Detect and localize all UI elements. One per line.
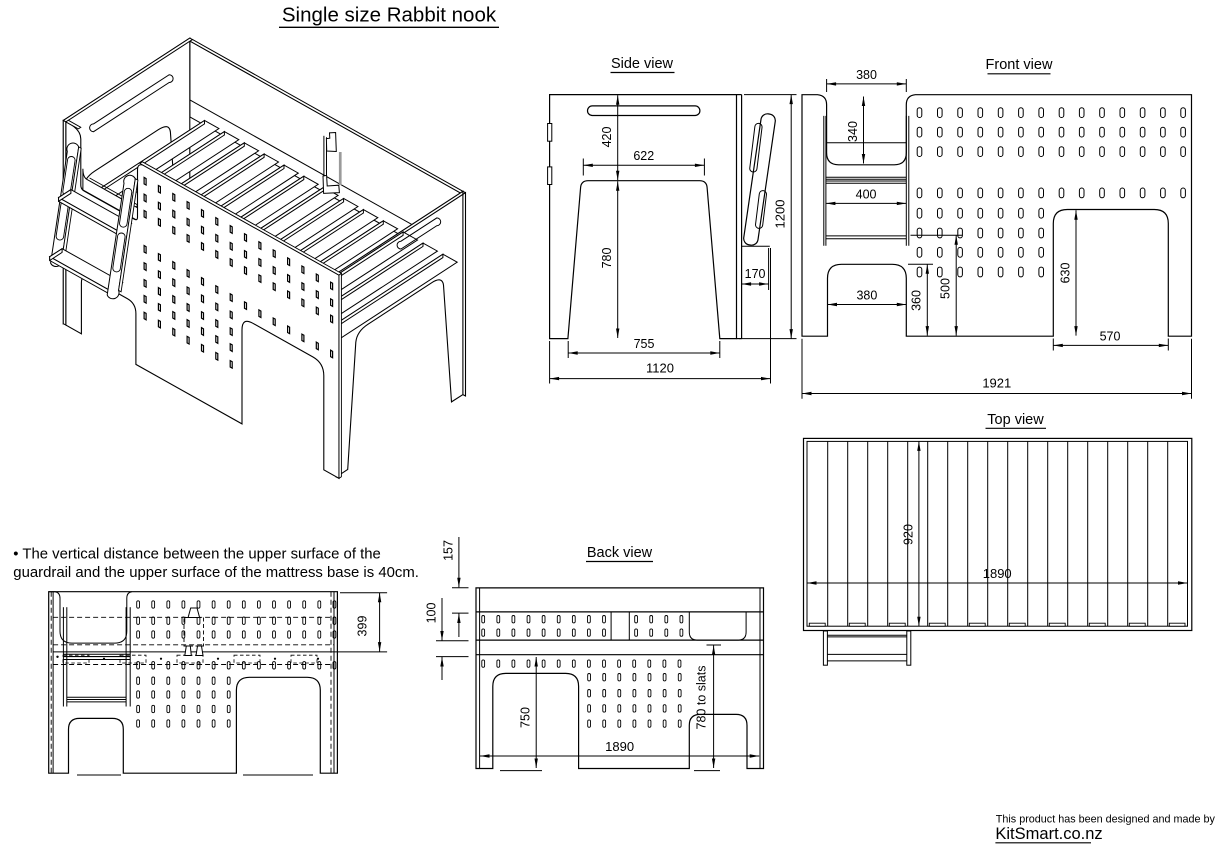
svg-text:1890: 1890: [983, 566, 1012, 581]
svg-text:Single size Rabbit nook: Single size Rabbit nook: [282, 4, 497, 27]
svg-text:360: 360: [910, 290, 924, 311]
svg-text:1200: 1200: [773, 200, 788, 229]
svg-text:755: 755: [634, 337, 655, 351]
svg-text:Back view: Back view: [587, 545, 653, 561]
svg-text:Front view: Front view: [986, 57, 1053, 73]
svg-text:This product has been designed: This product has been designed and made …: [996, 814, 1216, 826]
svg-text:• The vertical distance betwee: • The vertical distance between the uppe…: [13, 547, 381, 563]
svg-text:170: 170: [745, 267, 766, 281]
svg-text:570: 570: [1100, 329, 1121, 343]
svg-text:guardrail and the upper surfac: guardrail and the upper surface of the m…: [13, 565, 419, 581]
svg-text:Top view: Top view: [987, 412, 1044, 428]
svg-text:380: 380: [856, 68, 877, 82]
svg-text:1921: 1921: [982, 375, 1011, 390]
svg-text:622: 622: [633, 149, 654, 163]
svg-text:1890: 1890: [605, 739, 634, 754]
svg-text:780 to slats: 780 to slats: [695, 666, 709, 730]
svg-text:100: 100: [424, 603, 438, 624]
svg-text:780: 780: [600, 248, 614, 269]
svg-text:920: 920: [901, 524, 915, 545]
svg-text:500: 500: [939, 278, 953, 299]
svg-text:750: 750: [519, 707, 533, 728]
svg-text:400: 400: [856, 187, 877, 201]
svg-text:KitSmart.co.nz: KitSmart.co.nz: [995, 825, 1102, 843]
svg-text:380: 380: [856, 288, 877, 302]
svg-text:630: 630: [1058, 263, 1072, 284]
svg-text:157: 157: [441, 540, 455, 561]
svg-text:340: 340: [846, 121, 860, 142]
svg-text:420: 420: [600, 127, 614, 148]
svg-text:399: 399: [356, 616, 370, 637]
svg-text:Side view: Side view: [611, 56, 674, 72]
svg-text:1120: 1120: [646, 360, 674, 375]
